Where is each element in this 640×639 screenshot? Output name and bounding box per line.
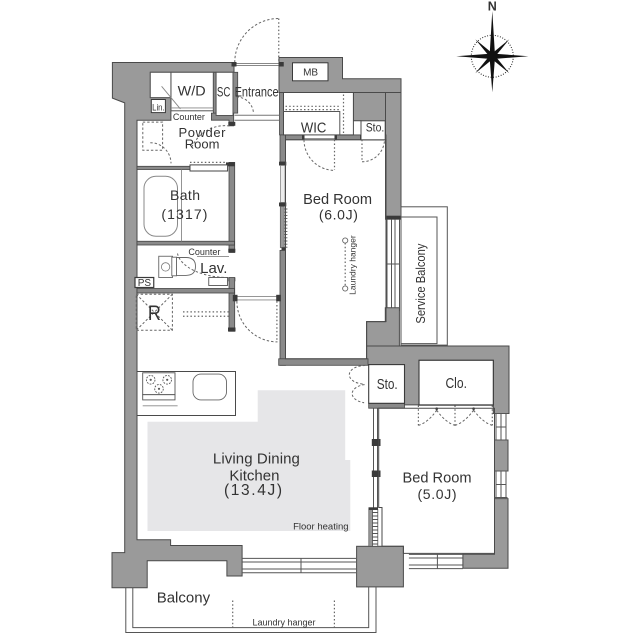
svg-text:Clo.: Clo. (445, 375, 467, 392)
svg-text:N: N (488, 0, 497, 14)
svg-text:(1317): (1317) (161, 206, 207, 222)
svg-text:Floor heating: Floor heating (293, 522, 348, 533)
svg-text:(6.0J): (6.0J) (319, 206, 358, 222)
svg-text:MB: MB (303, 68, 318, 79)
svg-text:R: R (148, 302, 161, 325)
svg-text:Bath: Bath (170, 187, 200, 203)
svg-text:PS: PS (138, 278, 152, 289)
svg-text:Counter: Counter (173, 112, 205, 122)
svg-text:Lav.: Lav. (200, 260, 227, 277)
svg-text:SC: SC (217, 85, 231, 100)
svg-text:Laundry hanger: Laundry hanger (348, 235, 358, 295)
svg-text:Laundry hanger: Laundry hanger (252, 618, 315, 628)
svg-text:Sto.: Sto. (366, 122, 385, 134)
svg-text:Lin.: Lin. (152, 102, 165, 112)
svg-text:(13.4J): (13.4J) (224, 482, 282, 499)
svg-text:WIC: WIC (301, 119, 327, 136)
svg-text:Room: Room (185, 136, 220, 151)
svg-text:Bed Room: Bed Room (303, 191, 372, 208)
svg-text:Sto.: Sto. (377, 376, 398, 393)
svg-text:Counter: Counter (188, 247, 220, 257)
svg-text:Living Dining: Living Dining (213, 450, 300, 467)
svg-text:Bed Room: Bed Room (403, 469, 472, 486)
svg-text:(5.0J): (5.0J) (418, 486, 457, 502)
svg-text:Balcony: Balcony (157, 590, 211, 607)
svg-text:Entrance: Entrance (235, 84, 279, 100)
svg-text:Service Balcony: Service Balcony (413, 243, 428, 323)
svg-text:W/D: W/D (178, 83, 206, 99)
